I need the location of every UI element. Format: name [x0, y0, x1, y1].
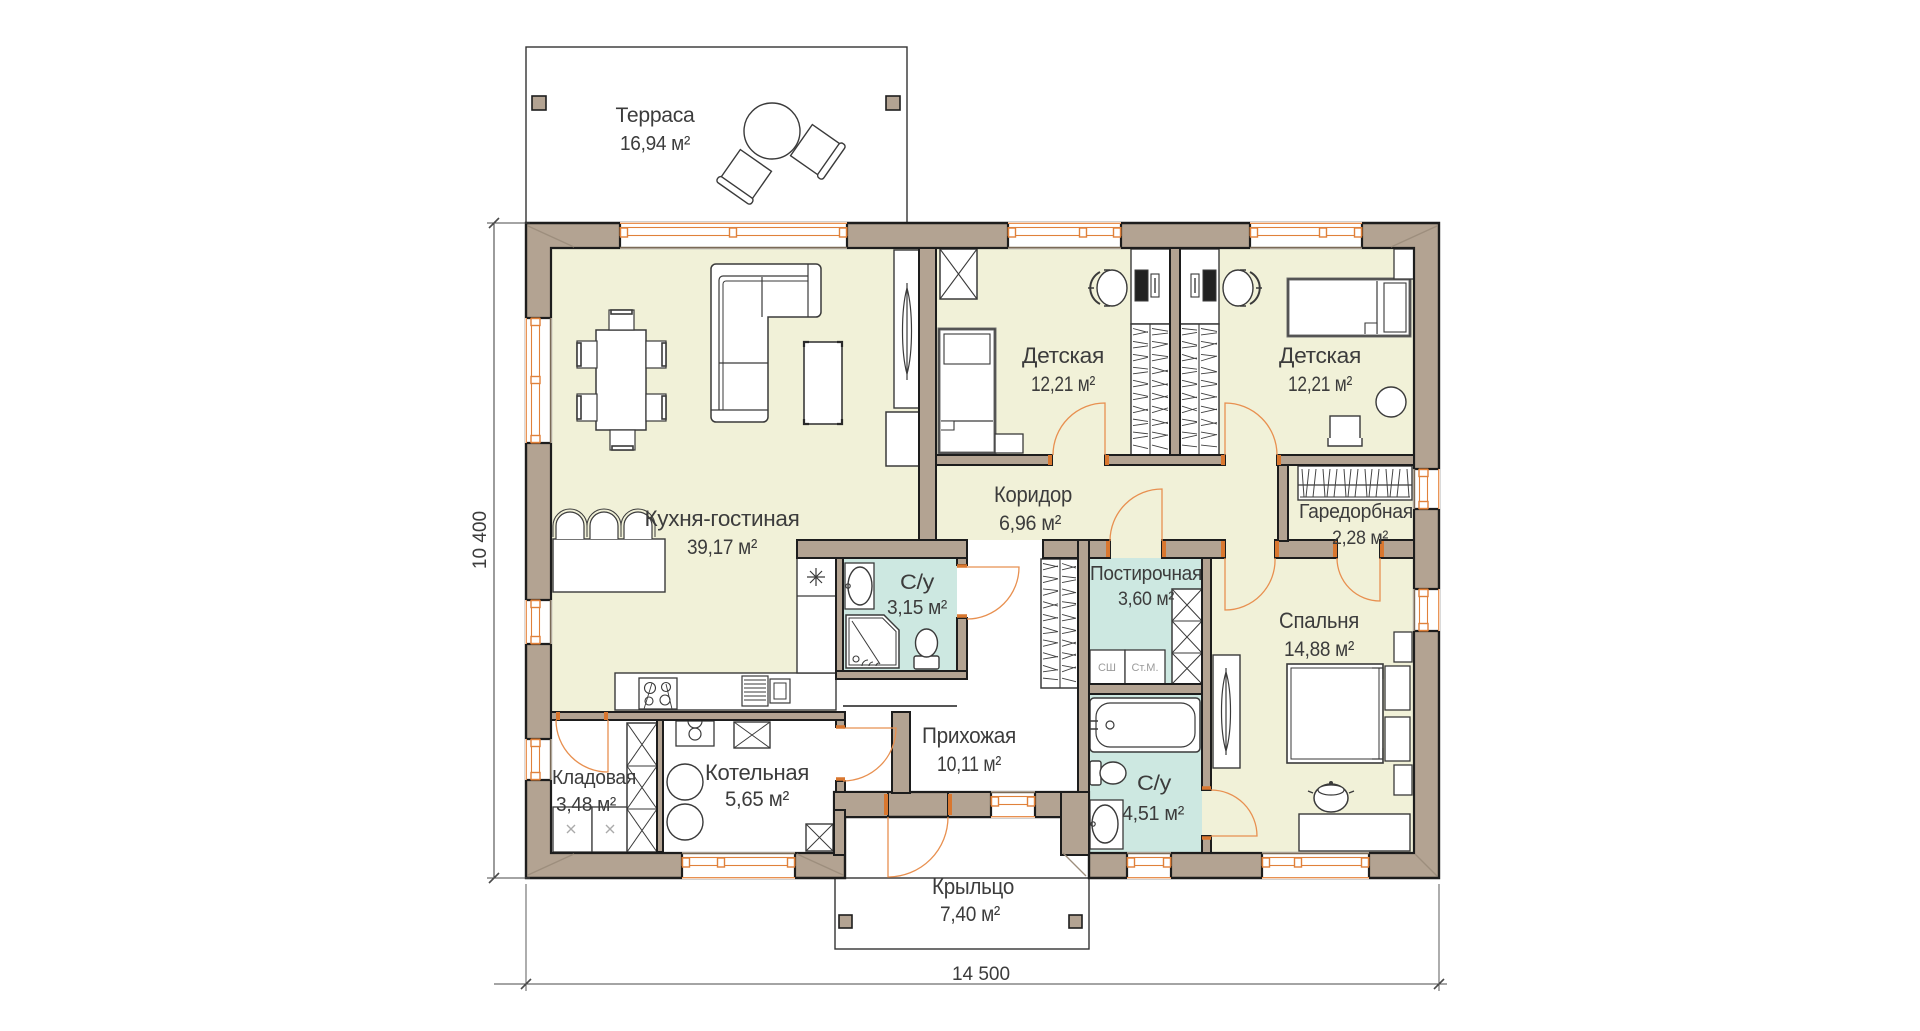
svg-text:Кухня-гостиная: Кухня-гостиная — [645, 506, 800, 531]
svg-text:Ст.М.: Ст.М. — [1131, 662, 1158, 674]
svg-text:4,51 м²: 4,51 м² — [1122, 803, 1185, 825]
svg-text:Котельная: Котельная — [705, 760, 809, 785]
svg-text:16,94 м²: 16,94 м² — [620, 133, 691, 155]
svg-text:6,96 м²: 6,96 м² — [999, 512, 1061, 535]
svg-text:7,40 м²: 7,40 м² — [940, 903, 1000, 926]
svg-text:3,48 м²: 3,48 м² — [556, 794, 617, 816]
svg-text:10 400: 10 400 — [470, 511, 491, 569]
svg-text:Терраса: Терраса — [616, 104, 696, 127]
svg-text:39,17 м²: 39,17 м² — [687, 536, 757, 559]
svg-text:СШ: СШ — [1098, 662, 1116, 674]
svg-text:10,11 м²: 10,11 м² — [937, 753, 1001, 776]
svg-text:3,15 м²: 3,15 м² — [887, 597, 948, 619]
svg-text:Коридор: Коридор — [994, 482, 1072, 507]
svg-text:Крыльцо: Крыльцо — [932, 874, 1014, 899]
svg-text:Гаредорбная: Гаредорбная — [1299, 501, 1413, 523]
svg-text:Детская: Детская — [1279, 343, 1361, 368]
svg-text:Спальня: Спальня — [1279, 608, 1359, 633]
svg-text:14,88 м²: 14,88 м² — [1284, 638, 1354, 661]
svg-text:3,60 м²: 3,60 м² — [1118, 589, 1174, 610]
svg-text:12,21 м²: 12,21 м² — [1031, 373, 1095, 396]
svg-text:Детская: Детская — [1022, 343, 1104, 368]
svg-text:С/у: С/у — [900, 571, 935, 594]
svg-text:С/у: С/у — [1137, 772, 1172, 795]
svg-text:Постирочная: Постирочная — [1090, 563, 1202, 585]
svg-text:Прихожая: Прихожая — [922, 723, 1016, 748]
svg-text:14 500: 14 500 — [952, 964, 1010, 985]
svg-text:2,28 м²: 2,28 м² — [1332, 528, 1388, 549]
svg-text:Кладовая: Кладовая — [552, 767, 636, 789]
svg-text:12,21 м²: 12,21 м² — [1288, 373, 1352, 396]
svg-text:5,65 м²: 5,65 м² — [725, 788, 789, 811]
